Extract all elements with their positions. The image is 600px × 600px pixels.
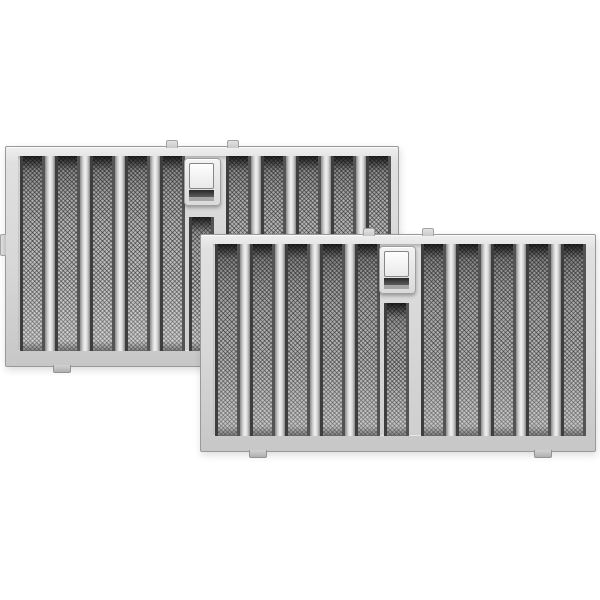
slot-shadow-top <box>564 244 583 259</box>
baffle-ridge <box>446 244 456 436</box>
slot-shadow-top <box>358 244 377 259</box>
baffle-ridge <box>516 244 526 436</box>
baffle-slot <box>250 244 275 436</box>
baffle-slot <box>421 244 446 436</box>
slot-shadow-top <box>192 217 211 232</box>
slot-shadow-bottom <box>529 426 548 436</box>
slot-shadow-bottom <box>218 426 237 436</box>
slot-shadow-bottom <box>128 341 147 351</box>
baffle-ridge <box>310 244 320 436</box>
baffle-ridge <box>115 156 125 351</box>
slot-shadow-top <box>334 156 353 171</box>
handle-latch-base <box>384 285 409 289</box>
slot-shadow-top <box>58 156 77 171</box>
baffle-ridge <box>481 244 491 436</box>
slot-shadow-bottom <box>58 341 77 351</box>
slot-shadow-top <box>288 244 307 259</box>
mounting-tab-top <box>422 228 434 236</box>
mounting-tab-bottom <box>53 365 71 373</box>
slot-shadow-top <box>529 244 548 259</box>
mounting-tab-side <box>0 234 6 256</box>
slot-shadow-top <box>299 156 318 171</box>
slot-shadow-top <box>93 156 112 171</box>
baffle-slot <box>526 244 551 436</box>
product-photo <box>0 0 600 600</box>
mounting-tab-bottom <box>249 450 267 458</box>
front-baffle-filter <box>200 234 596 452</box>
slot-shadow-bottom <box>253 426 272 436</box>
baffle-ridge <box>80 156 90 351</box>
handle-latch-base <box>189 197 214 201</box>
slot-shadow-bottom <box>424 426 443 436</box>
handle-button <box>189 163 214 189</box>
slot-shadow-top <box>229 156 248 171</box>
mounting-tab-bottom <box>534 450 552 458</box>
baffle-slot <box>90 156 115 351</box>
slot-shadow-bottom <box>323 426 342 436</box>
baffle-slot <box>55 156 80 351</box>
slot-shadow-bottom <box>358 426 377 436</box>
baffle-slot <box>160 156 185 351</box>
baffle-ridge <box>275 244 285 436</box>
handle-latch-band <box>384 278 409 285</box>
baffle-slot <box>215 244 240 436</box>
filter-interior <box>213 244 586 436</box>
baffle-slot <box>320 244 345 436</box>
baffle-ridge <box>150 156 160 351</box>
baffle-slot <box>456 244 481 436</box>
baffle-slot <box>285 244 310 436</box>
baffle-slot <box>355 244 380 436</box>
slot-shadow-top <box>264 156 283 171</box>
slot-shadow-bottom <box>288 426 307 436</box>
baffle-slot <box>20 156 45 351</box>
slot-shadow-top <box>218 244 237 259</box>
slot-shadow-top <box>459 244 478 259</box>
handle-slot <box>384 303 409 436</box>
slot-shadow-top <box>23 156 42 171</box>
slot-shadow-top <box>369 156 388 171</box>
baffle-ridge <box>45 156 55 351</box>
slot-shadow-top <box>424 244 443 259</box>
slot-shadow-top <box>323 244 342 259</box>
slot-shadow-bottom <box>387 426 406 436</box>
slot-shadow-bottom <box>163 341 182 351</box>
baffle-slot <box>561 244 586 436</box>
mounting-tab-top <box>363 228 375 236</box>
slot-shadow-top <box>494 244 513 259</box>
slot-shadow-bottom <box>564 426 583 436</box>
baffle-ridge <box>240 244 250 436</box>
slot-shadow-bottom <box>459 426 478 436</box>
baffle-ridge <box>551 244 561 436</box>
baffle-slot <box>125 156 150 351</box>
slot-shadow-top <box>128 156 147 171</box>
slot-shadow-bottom <box>494 426 513 436</box>
mounting-tab-top <box>227 140 239 148</box>
slot-shadow-top <box>387 303 406 318</box>
slot-shadow-bottom <box>93 341 112 351</box>
handle-plate <box>184 158 221 206</box>
handle-latch-band <box>189 190 214 197</box>
baffle-slot <box>491 244 516 436</box>
baffle-ridge <box>345 244 355 436</box>
handle-button <box>384 251 409 277</box>
handle-plate <box>379 246 416 294</box>
slot-shadow-bottom <box>23 341 42 351</box>
mounting-tab-top <box>166 140 178 148</box>
slot-shadow-top <box>253 244 272 259</box>
slot-shadow-top <box>163 156 182 171</box>
